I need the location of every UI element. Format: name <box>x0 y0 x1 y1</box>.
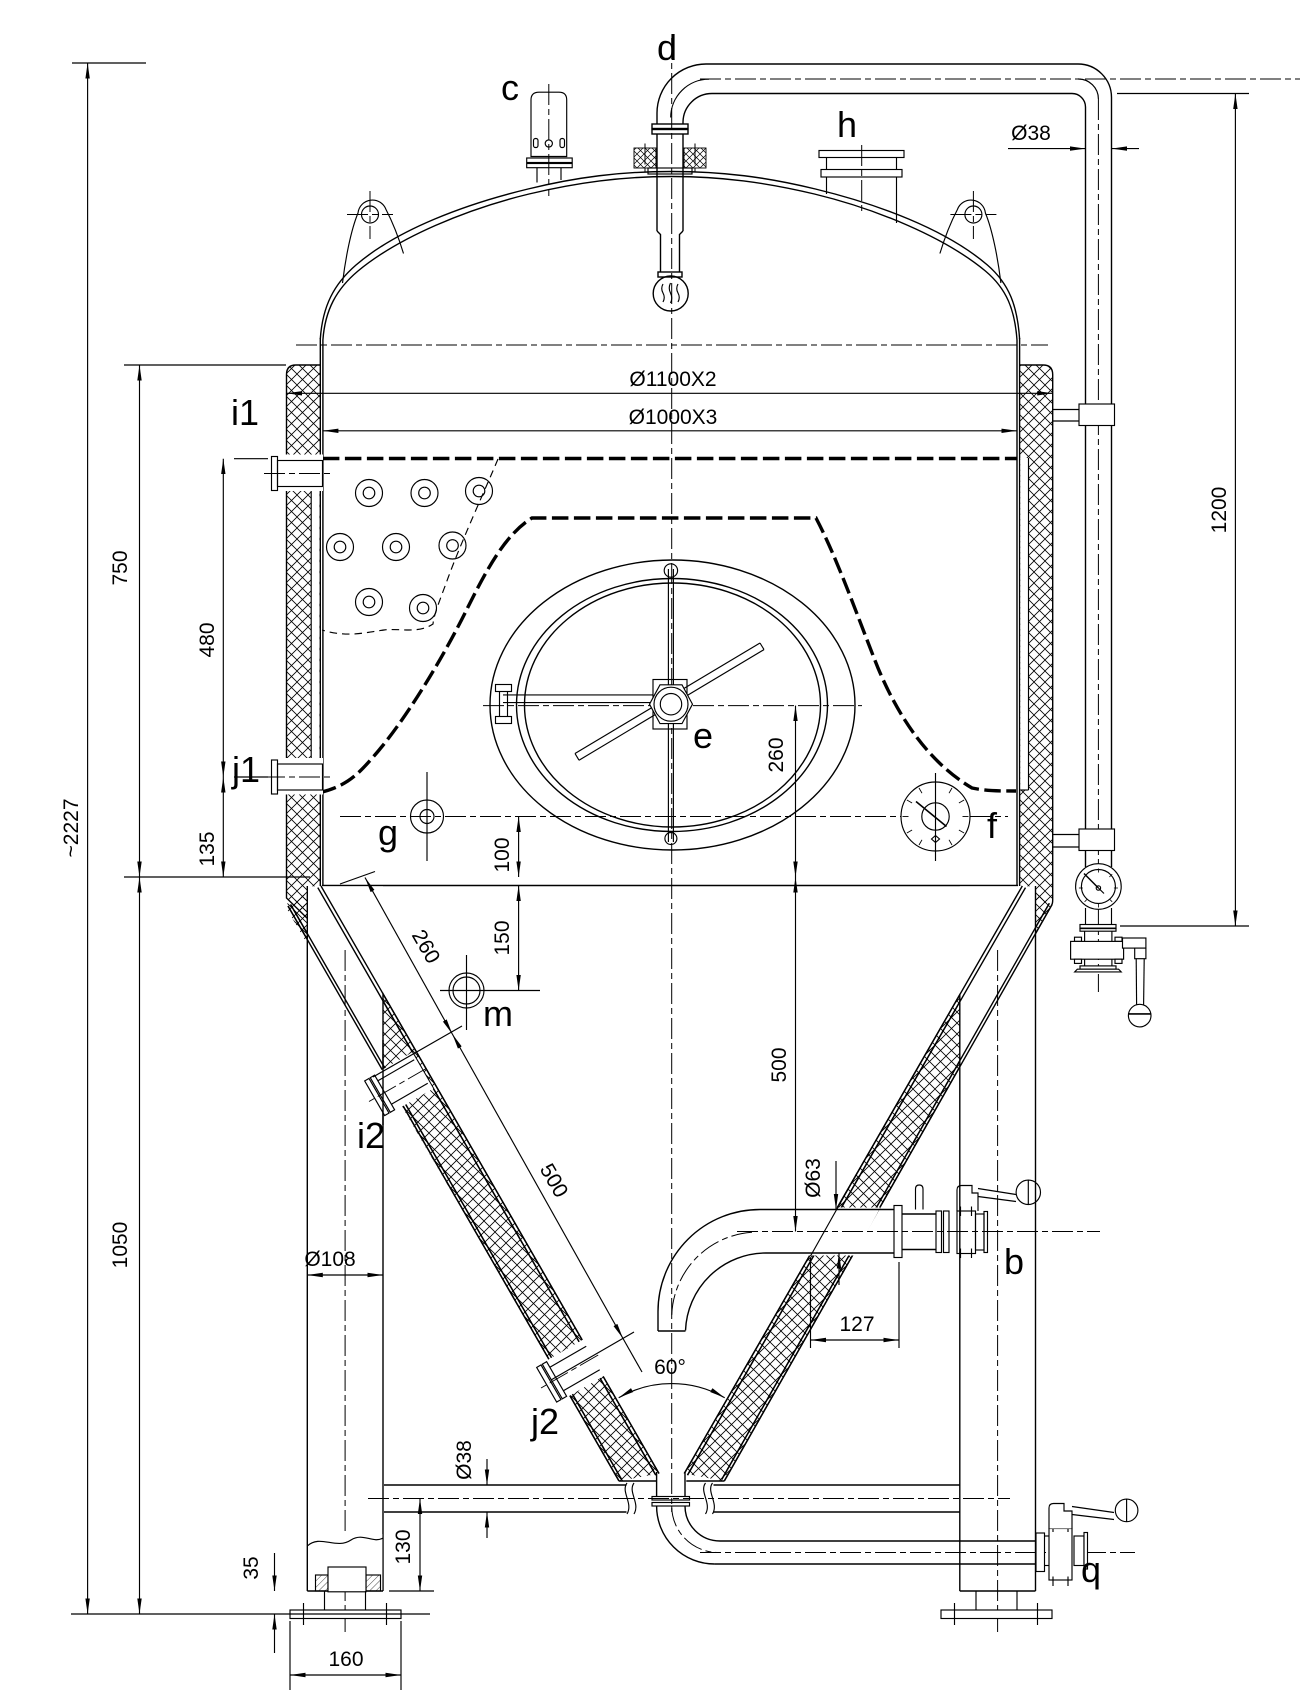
svg-text:750: 750 <box>109 550 132 585</box>
svg-text:i1: i1 <box>231 392 259 433</box>
svg-text:q: q <box>1081 1549 1101 1590</box>
svg-text:35: 35 <box>240 1556 263 1579</box>
svg-text:m: m <box>483 993 513 1034</box>
svg-text:d: d <box>657 27 677 68</box>
svg-text:Ø1100X2: Ø1100X2 <box>629 368 716 391</box>
svg-text:h: h <box>837 104 857 145</box>
svg-text:135: 135 <box>196 831 219 866</box>
svg-text:127: 127 <box>839 1313 874 1336</box>
svg-text:e: e <box>693 715 713 756</box>
svg-text:260: 260 <box>765 737 788 772</box>
svg-text:150: 150 <box>491 920 514 955</box>
svg-text:~2227: ~2227 <box>60 799 83 858</box>
svg-text:100: 100 <box>491 837 514 872</box>
svg-text:500: 500 <box>768 1047 791 1082</box>
svg-text:130: 130 <box>392 1529 415 1564</box>
svg-text:g: g <box>378 812 398 853</box>
svg-text:160: 160 <box>328 1648 363 1671</box>
svg-text:b: b <box>1004 1241 1024 1282</box>
svg-text:c: c <box>501 67 519 108</box>
svg-text:Ø63: Ø63 <box>802 1158 825 1198</box>
svg-text:Ø38: Ø38 <box>453 1440 476 1480</box>
svg-text:j2: j2 <box>530 1401 559 1442</box>
svg-text:i2: i2 <box>357 1115 385 1156</box>
svg-text:f: f <box>987 805 998 846</box>
svg-text:1200: 1200 <box>1208 487 1231 534</box>
svg-text:Ø108: Ø108 <box>304 1248 355 1271</box>
svg-text:Ø38: Ø38 <box>1011 122 1051 145</box>
svg-text:Ø1000X3: Ø1000X3 <box>629 406 718 429</box>
svg-text:1050: 1050 <box>109 1222 132 1269</box>
svg-text:j1: j1 <box>231 749 260 790</box>
svg-text:60°: 60° <box>654 1356 686 1379</box>
svg-text:480: 480 <box>196 622 219 657</box>
